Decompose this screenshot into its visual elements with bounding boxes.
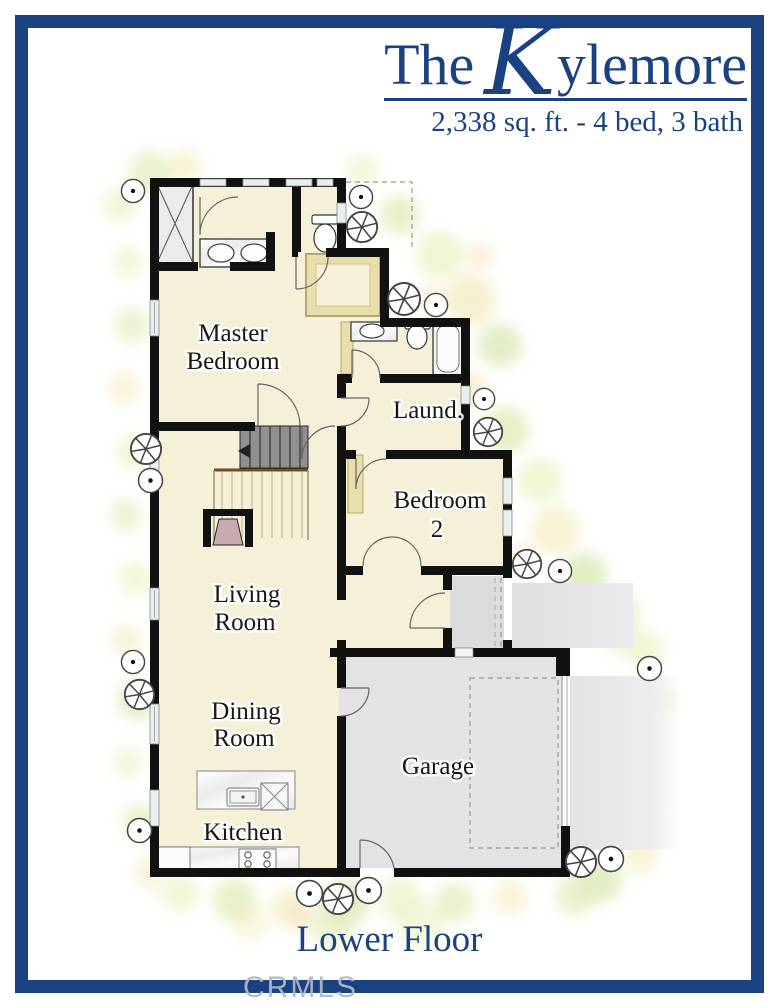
fireplace-icon: [203, 509, 253, 547]
garage-door: [562, 676, 567, 826]
label-living-room: Living: [214, 581, 281, 608]
bathtub-icon: [433, 321, 463, 376]
tree-icon: [347, 212, 377, 242]
entry-stoop: [450, 576, 504, 650]
tree-icon: [349, 185, 372, 208]
label-living-room: Room: [214, 609, 276, 636]
floor-plan-page: TheKylemore 2,338 sq. ft. - 4 bed, 3 bat…: [0, 0, 779, 1008]
tree-icon: [121, 179, 144, 202]
label-master-bedroom: Master: [198, 320, 268, 347]
label-garage: Garage: [402, 753, 474, 780]
tree-icon: [121, 650, 144, 673]
label-bedroom-2: Bedroom: [393, 487, 487, 514]
tree-icon: [473, 388, 494, 409]
plan-title-block: TheKylemore 2,338 sq. ft. - 4 bed, 3 bat…: [384, 36, 747, 139]
plan-title: TheKylemore: [384, 36, 747, 101]
tree-icon: [513, 550, 541, 578]
tree-icon: [131, 434, 161, 464]
plan-subtitle: 2,338 sq. ft. - 4 bed, 3 bath: [384, 106, 747, 139]
label-laundry: Laund.: [393, 397, 463, 424]
tree-icon: [388, 283, 420, 315]
tree-icon: [139, 469, 163, 493]
kitchen-counter-icon: [157, 847, 299, 871]
crmls-watermark: CRMLS: [243, 971, 358, 1005]
title-rest: ylemore: [557, 32, 747, 97]
tree-icon: [356, 878, 382, 904]
label-bedroom-2: 2: [431, 516, 444, 543]
tree-icon: [638, 657, 662, 681]
tree-icon: [566, 847, 596, 877]
floor-level-label: Lower Floor: [0, 918, 779, 961]
tree-icon: [548, 559, 571, 582]
porch-walk: [512, 583, 633, 648]
tree-icon: [128, 819, 152, 843]
label-dining-room: Room: [213, 725, 275, 752]
toilet-icon: [312, 215, 338, 252]
tree-icon: [323, 884, 353, 914]
tree-icon: [424, 293, 447, 316]
tree-icon: [474, 418, 502, 446]
stove-icon: [239, 849, 276, 870]
label-kitchen: Kitchen: [203, 819, 283, 846]
tree-icon: [297, 881, 323, 907]
tree-icon: [599, 847, 624, 872]
label-dining-room: Dining: [211, 698, 281, 725]
shower-icon: [157, 184, 193, 263]
kitchen-island-icon: [197, 771, 295, 810]
tree-icon: [125, 680, 154, 709]
floor-plan-canvas: Master Bedroom Laund. Bedroom 2 Living R…: [0, 0, 779, 1008]
title-initial-k: K: [484, 5, 556, 117]
title-the: The: [384, 32, 474, 97]
driveway: [570, 676, 680, 850]
label-master-bedroom: Bedroom: [186, 348, 280, 375]
